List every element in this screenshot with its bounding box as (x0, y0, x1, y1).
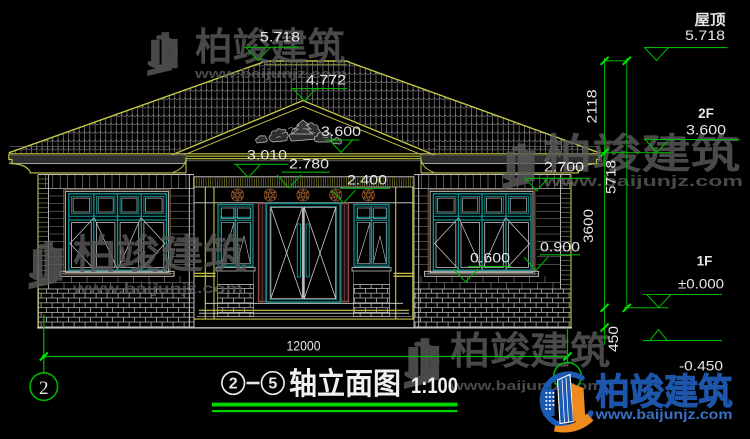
svg-text:柏竣建筑: 柏竣建筑 (450, 331, 610, 373)
svg-text:±0.000: ±0.000 (678, 277, 724, 292)
svg-text:5718: 5718 (604, 160, 619, 194)
svg-text:2118: 2118 (585, 90, 600, 124)
svg-text:3.010: 3.010 (247, 148, 287, 163)
svg-text:5: 5 (268, 376, 277, 393)
svg-text:2: 2 (39, 378, 49, 399)
svg-text:2F: 2F (698, 106, 714, 121)
svg-text:0.600: 0.600 (470, 251, 510, 266)
svg-text:5.718: 5.718 (685, 28, 725, 43)
svg-text:柏竣建筑: 柏竣建筑 (596, 371, 733, 412)
svg-text:屋顶: 屋顶 (695, 12, 727, 29)
svg-text:2.780: 2.780 (289, 157, 329, 172)
svg-text:2.400: 2.400 (347, 173, 387, 188)
svg-text:www.baijunjz.com: www.baijunjz.com (594, 407, 732, 422)
svg-text:3.600: 3.600 (686, 123, 726, 138)
svg-text:5.718: 5.718 (260, 30, 300, 45)
svg-text:2.700: 2.700 (544, 160, 584, 175)
svg-text:12000: 12000 (287, 338, 321, 354)
svg-text:柏竣建筑: 柏竣建筑 (73, 233, 247, 277)
svg-text:4.772: 4.772 (306, 73, 346, 88)
svg-text:0.900: 0.900 (540, 240, 580, 255)
svg-text:2: 2 (229, 376, 238, 393)
svg-text:轴立面图: 轴立面图 (289, 367, 401, 401)
svg-text:450: 450 (606, 326, 621, 352)
svg-text:3.600: 3.600 (321, 124, 361, 139)
svg-text:3600: 3600 (581, 209, 596, 243)
svg-text:1:100: 1:100 (411, 373, 458, 398)
svg-text:1F: 1F (697, 254, 713, 269)
svg-text:www.baijunjz.com: www.baijunjz.com (72, 281, 243, 296)
svg-text:www.baijunjz.com: www.baijunjz.com (541, 174, 743, 190)
